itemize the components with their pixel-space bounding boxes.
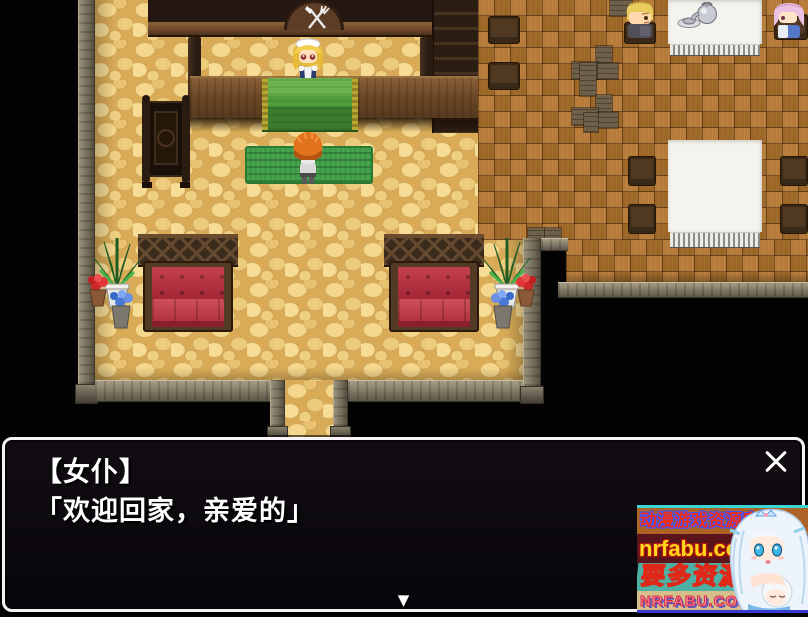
potted-plants-left xyxy=(84,232,150,334)
corridor-floor xyxy=(285,381,333,437)
sofa-front xyxy=(152,321,224,327)
worn-tile xyxy=(598,112,618,128)
wall-connector xyxy=(541,238,568,251)
cloth-trim xyxy=(262,78,268,130)
bottom-wall-right xyxy=(348,380,523,402)
sofa-back xyxy=(398,267,470,299)
chair xyxy=(488,62,520,90)
tablecloth-fringe xyxy=(670,232,760,248)
chair xyxy=(628,156,656,186)
chair xyxy=(780,204,808,234)
cloth-trim xyxy=(352,78,358,130)
worn-tile xyxy=(598,63,618,79)
dialogue-text: 「欢迎回家，亲爱的」 xyxy=(35,489,315,528)
chair xyxy=(628,204,656,234)
red-sofa-right xyxy=(389,261,479,332)
close-button[interactable] xyxy=(758,444,794,480)
sofa-front xyxy=(398,321,470,327)
bottom-wall-left xyxy=(95,380,270,402)
sofa-seat xyxy=(398,299,470,323)
seated-pink-haired-woman[interactable] xyxy=(770,0,808,40)
watermark-anime-girl xyxy=(720,508,808,613)
chair xyxy=(488,16,520,44)
corridor-wall-left xyxy=(270,380,285,426)
worn-tile xyxy=(584,113,598,132)
wooden-screen xyxy=(142,90,190,190)
player-character[interactable] xyxy=(291,130,325,186)
teapot-set xyxy=(676,2,722,30)
right-room-wall-cap xyxy=(520,386,544,404)
chair xyxy=(780,156,808,186)
white-table-bottom xyxy=(668,140,762,232)
parquet-bottom-wall xyxy=(558,282,808,298)
red-sofa-left xyxy=(143,261,233,332)
green-counter-cloth xyxy=(262,78,358,132)
seated-blond-man[interactable] xyxy=(620,0,660,40)
watermark: 动漫游戏资源库 nrfabu.com 要多资源 NRFABU.COM xyxy=(637,505,808,613)
tablecloth-fringe xyxy=(670,44,760,56)
worn-tile xyxy=(580,63,596,96)
corridor-wall-right xyxy=(333,380,348,426)
game-screen[interactable]: 【女仆】 「欢迎回家，亲爱的」 ▼ 动漫游戏资源库 nrfabu.com 要多资… xyxy=(0,0,808,617)
maid-npc[interactable] xyxy=(288,36,328,82)
continue-indicator-icon[interactable]: ▼ xyxy=(398,591,410,609)
dialogue-speaker: 【女仆】 xyxy=(35,450,147,489)
fork-knife-icon xyxy=(297,5,337,31)
sofa-seat xyxy=(152,299,224,323)
potted-plants-right xyxy=(474,232,540,334)
sofa-back xyxy=(152,267,224,299)
